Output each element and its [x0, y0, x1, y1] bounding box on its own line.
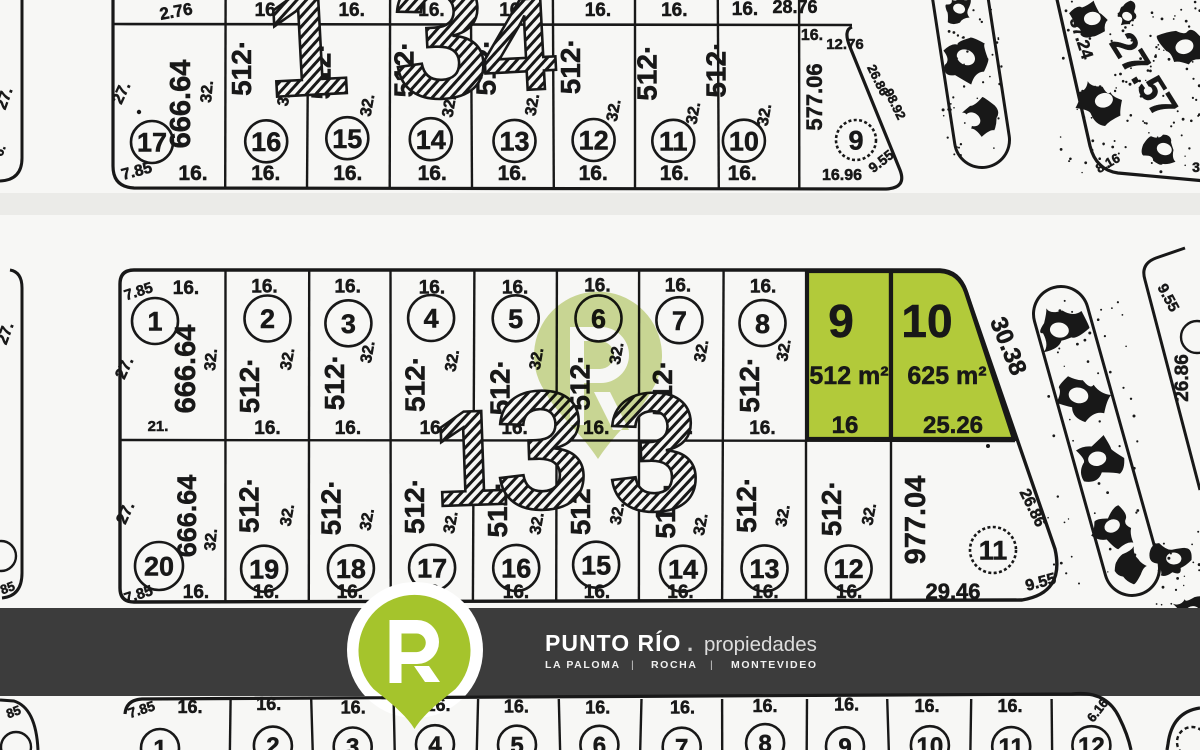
svg-text:3: 3 [346, 734, 359, 750]
svg-text:7: 7 [672, 306, 687, 336]
svg-text:16: 16 [832, 412, 859, 439]
svg-text:512·: 512· [555, 38, 586, 94]
svg-text:16: 16 [501, 554, 531, 584]
svg-text:5: 5 [510, 732, 523, 750]
svg-text:512·: 512· [319, 354, 350, 410]
svg-text:2: 2 [260, 304, 275, 334]
svg-text:512·: 512· [734, 357, 765, 413]
svg-text:10: 10 [729, 126, 759, 156]
svg-text:666.64: 666.64 [172, 475, 202, 558]
svg-text:6: 6 [593, 733, 606, 750]
svg-text:577.06: 577.06 [802, 63, 827, 130]
svg-text:9: 9 [848, 126, 863, 156]
svg-text:32.: 32. [202, 348, 221, 372]
svg-text:9: 9 [838, 734, 851, 750]
svg-text:16.: 16. [661, 0, 687, 21]
svg-text:16.: 16. [749, 418, 775, 439]
svg-text:16.96: 16.96 [822, 167, 862, 184]
svg-text:26.86: 26.86 [1172, 354, 1193, 402]
svg-text:|: | [710, 659, 713, 671]
svg-text:7: 7 [675, 734, 688, 750]
svg-text:4: 4 [424, 304, 439, 334]
svg-text:16.: 16. [732, 0, 758, 20]
svg-text:625 m²: 625 m² [907, 362, 986, 390]
svg-text:12: 12 [834, 554, 864, 584]
svg-text:16.: 16. [914, 696, 939, 716]
svg-text:16.: 16. [183, 582, 209, 603]
svg-text:16.: 16. [660, 162, 689, 185]
svg-text:3: 3 [1192, 159, 1200, 175]
svg-text:16.: 16. [585, 698, 610, 718]
svg-text:512·: 512· [816, 480, 847, 536]
svg-text:16.: 16. [665, 276, 691, 297]
svg-text:11: 11 [979, 536, 1008, 566]
svg-text:1: 1 [261, 0, 353, 129]
svg-text:512·: 512· [400, 356, 431, 412]
svg-text:8: 8 [758, 731, 771, 750]
svg-text:16.: 16. [834, 695, 859, 715]
svg-text:10: 10 [901, 295, 952, 347]
svg-text:10: 10 [917, 733, 944, 750]
svg-text:16.: 16. [585, 0, 611, 21]
svg-text:3: 3 [341, 309, 356, 339]
svg-text:29.46: 29.46 [925, 579, 980, 604]
svg-text:ROCHA: ROCHA [651, 659, 698, 671]
svg-text:16.: 16. [251, 162, 280, 185]
svg-text:512·: 512· [399, 478, 430, 534]
svg-text:16.: 16. [334, 277, 360, 298]
svg-text:MONTEVIDEO: MONTEVIDEO [731, 659, 818, 671]
svg-text:16: 16 [251, 127, 281, 157]
svg-text:8: 8 [755, 309, 770, 339]
svg-text:16.: 16. [670, 698, 695, 718]
svg-text:32.: 32. [202, 528, 221, 552]
svg-text:666.64: 666.64 [165, 60, 197, 149]
svg-text:32.: 32. [198, 80, 217, 104]
svg-text:3: 3 [388, 0, 494, 136]
svg-text:512·: 512· [316, 479, 347, 535]
svg-text:16.: 16. [341, 698, 366, 718]
svg-text:16.: 16. [335, 418, 361, 439]
svg-text:16.: 16. [337, 582, 363, 603]
svg-text:16.: 16. [253, 582, 279, 603]
svg-text:PUNTO RÍO: PUNTO RÍO [545, 629, 681, 656]
svg-text:4: 4 [478, 0, 559, 120]
svg-text:512·: 512· [226, 40, 257, 96]
svg-text:512·: 512· [731, 477, 762, 533]
svg-text:16.: 16. [498, 162, 527, 185]
svg-text:512·: 512· [701, 42, 732, 98]
svg-text:16.: 16. [418, 162, 447, 185]
svg-text:977.04: 977.04 [900, 476, 932, 565]
svg-text:.: . [687, 631, 693, 656]
svg-text:21.: 21. [148, 418, 169, 435]
svg-text:16.: 16. [801, 27, 823, 44]
svg-text:16.: 16. [503, 582, 529, 603]
svg-text:16.: 16. [173, 278, 199, 299]
svg-text:18: 18 [336, 554, 366, 584]
svg-text:16.: 16. [177, 697, 202, 717]
svg-text:LA PALOMA: LA PALOMA [545, 659, 621, 671]
svg-text:17: 17 [417, 553, 447, 583]
svg-text:15: 15 [581, 550, 611, 580]
svg-text:4: 4 [428, 732, 442, 750]
svg-text:1: 1 [153, 736, 166, 750]
svg-text:16.: 16. [254, 418, 280, 439]
svg-text:15: 15 [332, 124, 362, 154]
svg-text:512·: 512· [234, 357, 265, 413]
svg-text:16.: 16. [752, 582, 778, 603]
svg-text:13: 13 [499, 127, 529, 157]
svg-text:17: 17 [137, 128, 167, 158]
svg-text:16.: 16. [178, 162, 207, 185]
svg-text:20: 20 [144, 552, 174, 582]
svg-text:16.: 16. [836, 582, 862, 603]
svg-text:16.: 16. [584, 582, 610, 603]
svg-text:13: 13 [749, 554, 779, 584]
svg-text:16.: 16. [333, 162, 362, 185]
svg-text:28.76: 28.76 [772, 0, 817, 17]
svg-text:14: 14 [668, 555, 698, 585]
svg-text:1: 1 [147, 307, 162, 337]
svg-text:propiedades: propiedades [704, 633, 817, 656]
svg-text:12: 12 [1078, 733, 1105, 750]
svg-text:16.: 16. [728, 162, 757, 185]
svg-text:5: 5 [508, 304, 523, 334]
svg-text:512·: 512· [233, 477, 264, 533]
svg-text:512 m²: 512 m² [809, 362, 888, 390]
svg-text:512·: 512· [631, 45, 662, 101]
svg-text:12.76: 12.76 [826, 36, 864, 53]
svg-text:16.: 16. [752, 696, 777, 716]
svg-text:16.: 16. [579, 162, 608, 185]
svg-text:9: 9 [828, 295, 854, 347]
svg-text:16.: 16. [256, 694, 281, 714]
svg-text:666.64: 666.64 [170, 325, 202, 414]
svg-text:16.: 16. [667, 582, 693, 603]
svg-text:16.: 16. [504, 696, 529, 716]
svg-text:11: 11 [999, 734, 1024, 750]
svg-text:11: 11 [659, 127, 688, 157]
svg-text:2: 2 [266, 733, 279, 750]
svg-text:16.: 16. [750, 277, 776, 298]
svg-text:19: 19 [249, 554, 279, 584]
svg-text:|: | [631, 659, 634, 671]
svg-text:25.26: 25.26 [923, 412, 983, 439]
svg-text:12: 12 [579, 126, 609, 156]
svg-text:16.: 16. [997, 696, 1022, 716]
